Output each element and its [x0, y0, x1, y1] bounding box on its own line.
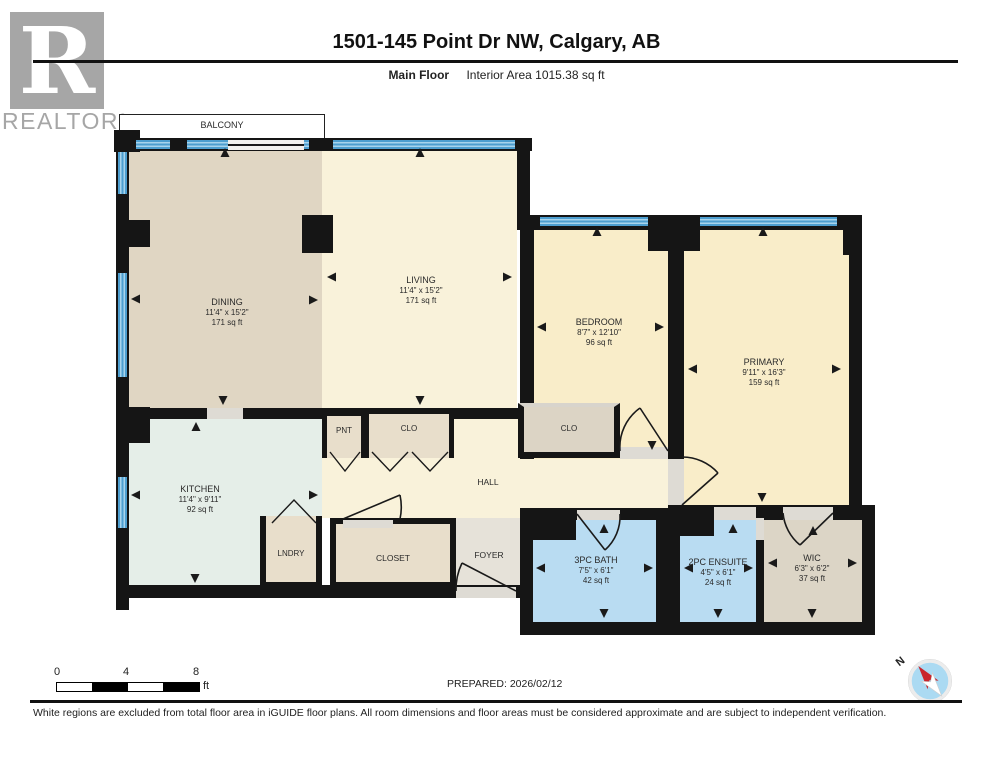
- footer-divider: [30, 700, 962, 703]
- disclaimer-text: White regions are excluded from total fl…: [33, 707, 973, 719]
- kitchen-label: KITCHEN 11'4" x 9'11" 92 sq ft: [140, 484, 260, 515]
- balcony-label: BALCONY: [119, 120, 325, 131]
- prepared-date: PREPARED: 2026/02/12: [447, 678, 562, 690]
- living-label: LIVING 11'4" x 15'2" 171 sq ft: [361, 275, 481, 306]
- scale-tick-4: 4: [120, 666, 132, 678]
- laundry-label: LNDRY: [261, 549, 321, 559]
- pantry-label: PNT: [324, 426, 364, 436]
- dining-label: DINING 11'4" x 15'2" 171 sq ft: [167, 297, 287, 328]
- closet-label: CLOSET: [343, 553, 443, 564]
- primary-label: PRIMARY 9'11" x 16'3" 159 sq ft: [704, 357, 824, 388]
- floor-label: Main Floor: [388, 68, 449, 82]
- bath-label: 3PC BATH 7'5" x 6'1" 42 sq ft: [536, 555, 656, 586]
- scale-unit: ft: [203, 680, 209, 692]
- foyer-label: FOYER: [459, 550, 519, 561]
- hall-label: HALL: [458, 477, 518, 488]
- compass-face: [910, 661, 950, 701]
- scale-tick-0: 0: [51, 666, 63, 678]
- header-divider: [33, 60, 958, 63]
- hall-closet-label: CLO: [379, 424, 439, 434]
- interior-area-label: Interior Area 1015.38 sq ft: [466, 68, 604, 82]
- bedroom-closet-label: CLO: [539, 424, 599, 434]
- scale-bar: [56, 682, 200, 692]
- scale-tick-8: 8: [190, 666, 202, 678]
- wic-label: WIC 6'3" x 6'2" 37 sq ft: [752, 553, 872, 584]
- floor-plan-page: R REALTOR® 1501-145 Point Dr NW, Calgary…: [0, 0, 993, 768]
- floor-subtitle: Main Floor Interior Area 1015.38 sq ft: [0, 68, 993, 82]
- bedroom-label: BEDROOM 8'7" x 12'10" 96 sq ft: [539, 317, 659, 348]
- compass-north-label: N: [894, 655, 908, 669]
- page-title: 1501-145 Point Dr NW, Calgary, AB: [0, 31, 993, 54]
